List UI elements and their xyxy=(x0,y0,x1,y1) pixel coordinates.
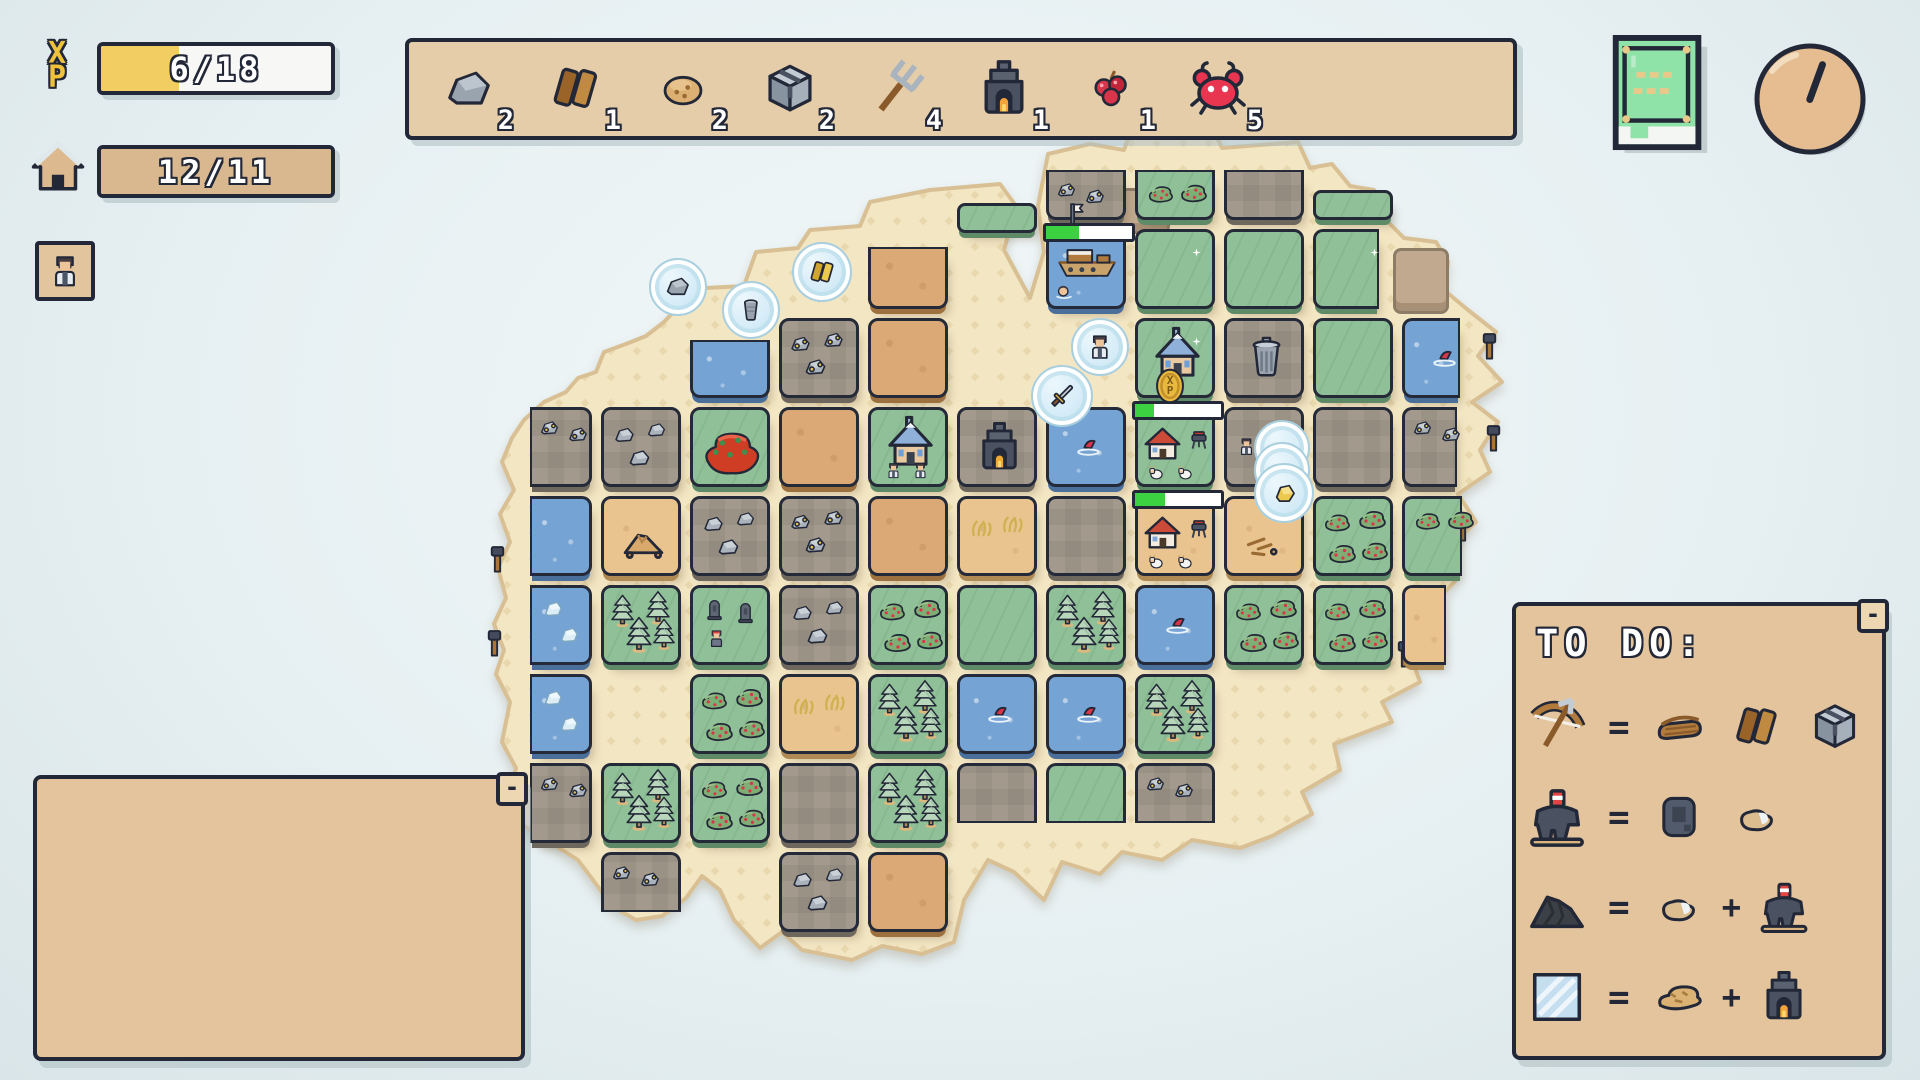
bubble-bucket[interactable] xyxy=(722,281,780,339)
leather-icon xyxy=(1652,700,1706,754)
equals-sign: = xyxy=(1608,887,1630,928)
fish-icon xyxy=(983,700,1016,733)
dock-post-icon xyxy=(486,629,503,658)
map-tile-grass[interactable] xyxy=(1135,229,1215,309)
map-tile-grass[interactable] xyxy=(1135,674,1215,754)
boat-icon xyxy=(1054,241,1120,282)
day-clock[interactable] xyxy=(1752,41,1868,157)
bubble-villager-avatar[interactable] xyxy=(1071,318,1129,376)
rock-icon xyxy=(803,621,832,650)
equals-sign: = xyxy=(1608,707,1630,748)
glass-icon xyxy=(1526,966,1588,1028)
sticks-icon xyxy=(1240,518,1285,563)
tile-progress-bar xyxy=(1043,223,1135,242)
map-tile-grass[interactable] xyxy=(1046,585,1126,665)
ore-rock-icon xyxy=(565,777,591,803)
trashcan-icon xyxy=(1244,331,1289,383)
item-count: 5 xyxy=(1247,105,1263,136)
bush-icon xyxy=(702,715,734,747)
map-tile-grass[interactable] xyxy=(1313,496,1393,576)
map-tile-stone[interactable] xyxy=(957,763,1037,823)
pitchfork-icon xyxy=(865,57,929,121)
map-tile-stone[interactable] xyxy=(957,407,1037,487)
rock-icon xyxy=(714,532,743,561)
fish-icon xyxy=(1072,700,1105,733)
map-tile-grass[interactable] xyxy=(1313,585,1393,665)
map-tile-stone[interactable] xyxy=(530,763,592,843)
item-count: 1 xyxy=(1140,105,1156,136)
tile-progress-bar xyxy=(1132,490,1224,509)
dry-grass-icon xyxy=(789,690,820,721)
xp-bar: 6/18 xyxy=(97,42,335,95)
ore-rock-icon xyxy=(820,326,847,353)
pine-icon xyxy=(918,796,944,829)
todo-title: TO DO: xyxy=(1536,622,1706,665)
grave-icon xyxy=(733,599,758,624)
map-tile-dirt[interactable] xyxy=(779,407,859,487)
planks-icon xyxy=(547,60,605,118)
map-tile-grass[interactable] xyxy=(690,674,770,754)
ore-rock-icon xyxy=(609,860,634,885)
dock-post-icon xyxy=(489,545,506,574)
drill-icon xyxy=(1757,880,1811,934)
map-tile-sand[interactable] xyxy=(601,496,681,576)
inventory-slot-planks[interactable]: 1 xyxy=(522,42,629,136)
item-count: 2 xyxy=(712,105,728,136)
map-tile-water[interactable] xyxy=(530,496,592,576)
bush-icon xyxy=(735,713,766,744)
stone-icon xyxy=(441,61,497,117)
map-tile-stone[interactable] xyxy=(779,585,859,665)
bush-icon xyxy=(732,681,764,713)
bush-icon xyxy=(1325,626,1357,658)
bush-icon xyxy=(1355,503,1387,535)
recipe-book-icon xyxy=(1612,35,1708,153)
rock-icon xyxy=(803,888,832,917)
pine-icon xyxy=(918,707,944,740)
villager-avatar-icon xyxy=(46,252,84,290)
dry-grass-icon xyxy=(998,508,1029,539)
goat-icon xyxy=(1145,551,1166,572)
map-tile-water[interactable] xyxy=(530,585,592,665)
map-tile-stone[interactable] xyxy=(1402,407,1457,487)
villager-red-icon xyxy=(706,628,727,649)
map-tile-sand[interactable] xyxy=(957,496,1037,576)
map-tile-stone[interactable] xyxy=(779,852,859,932)
pine-icon xyxy=(891,705,921,743)
bush-icon xyxy=(1269,624,1300,655)
inventory-slot-cookie[interactable]: 2 xyxy=(629,42,736,136)
pine-icon xyxy=(1185,707,1211,740)
bush-icon xyxy=(1177,177,1208,208)
goat-icon xyxy=(1145,462,1166,483)
map-tile-sand[interactable] xyxy=(1402,585,1446,665)
pebble-icon xyxy=(1730,790,1784,844)
map-tile-stone[interactable] xyxy=(1046,170,1126,220)
map-tile-grass[interactable] xyxy=(957,585,1037,665)
grill-icon xyxy=(1184,515,1213,544)
map-tile-sand[interactable] xyxy=(779,674,859,754)
map-tile-dirt[interactable] xyxy=(868,852,948,932)
pine-icon xyxy=(624,616,654,654)
dock-post-icon xyxy=(1485,424,1502,453)
bubble-gold-planks[interactable] xyxy=(792,242,852,302)
planks-icon xyxy=(1730,700,1784,754)
villager-avatar-button[interactable] xyxy=(35,241,95,301)
xp-icon-letter-p: P xyxy=(48,66,66,90)
map-tile-grass[interactable] xyxy=(1402,496,1462,576)
bush-icon xyxy=(698,685,728,715)
coal-icon xyxy=(1526,876,1588,938)
villager-icon xyxy=(884,461,903,480)
bush-icon xyxy=(1358,624,1389,655)
equals-sign: = xyxy=(1608,977,1630,1018)
ore-rock-icon xyxy=(1143,771,1168,796)
house-red-icon xyxy=(1141,511,1184,554)
map-tile-sand[interactable] xyxy=(1135,496,1215,576)
housing-bar: 12/11 xyxy=(97,145,335,198)
furnace-icon xyxy=(973,419,1026,476)
bush-icon xyxy=(698,774,728,804)
sparkle-icon xyxy=(1189,334,1204,349)
ore-rock-icon xyxy=(801,530,830,559)
xp-coin-label: X P xyxy=(1167,376,1174,396)
inventory-slot-furnace[interactable]: 1 xyxy=(950,42,1057,136)
fish-icon xyxy=(1161,611,1194,644)
sand-lump-icon xyxy=(1652,970,1706,1024)
pine-icon xyxy=(624,794,654,832)
fish-icon xyxy=(1428,344,1461,377)
iron-cube-icon xyxy=(761,60,819,118)
bush-icon xyxy=(910,592,942,624)
xp-coin-badge[interactable]: X P xyxy=(1152,365,1188,407)
rock-icon xyxy=(733,506,758,531)
ore-rock-icon xyxy=(820,504,847,531)
item-count: 2 xyxy=(498,105,514,136)
map-tile-dirt[interactable] xyxy=(868,318,948,398)
bush-icon xyxy=(1321,596,1351,626)
bush-icon xyxy=(1145,179,1174,208)
bush-icon xyxy=(1325,537,1357,569)
rock-icon xyxy=(625,443,654,472)
map-tile-water[interactable] xyxy=(530,674,592,754)
item-count: 4 xyxy=(926,105,942,136)
goat-icon xyxy=(1174,551,1195,572)
pine-icon xyxy=(1069,616,1099,654)
swimmer-icon xyxy=(1052,280,1076,304)
xp-icon: X P xyxy=(48,42,66,90)
pine-icon xyxy=(891,794,921,832)
bush-icon xyxy=(1266,592,1298,624)
recipe-book-button[interactable] xyxy=(1612,35,1708,153)
sand-pile-icon xyxy=(619,516,668,565)
bush-icon xyxy=(735,802,766,833)
bush-icon xyxy=(1232,596,1262,626)
pebble-icon xyxy=(1652,880,1706,934)
pine-icon xyxy=(1158,705,1188,743)
inventory-slot-stone[interactable]: 2 xyxy=(415,42,522,136)
map-tile-dirt[interactable] xyxy=(868,247,948,309)
map-tile-stone[interactable] xyxy=(601,407,681,487)
bush-icon xyxy=(880,626,912,658)
bush-icon xyxy=(1321,507,1351,537)
housing-bar-value: 12/11 xyxy=(101,149,331,194)
ore-rock-icon xyxy=(1082,183,1108,209)
ore-rock-icon xyxy=(1438,421,1464,447)
goat-icon xyxy=(1174,462,1195,483)
pine-icon xyxy=(1096,618,1122,651)
inventory-slot-berries[interactable]: 1 xyxy=(1057,42,1164,136)
ice-rock-icon xyxy=(540,596,566,622)
equals-sign: = xyxy=(1608,797,1630,838)
grill-icon xyxy=(1184,426,1213,455)
crab-icon xyxy=(1186,57,1250,121)
todo-panel: TO DO: - ===+=+ xyxy=(1512,602,1886,1060)
bubble-sword[interactable] xyxy=(1031,365,1093,427)
map-tile-stone[interactable] xyxy=(1224,170,1304,220)
map-tile-grass[interactable] xyxy=(1313,318,1393,398)
map-tile-grass[interactable] xyxy=(690,763,770,843)
furnace-icon xyxy=(974,59,1034,119)
rock-icon xyxy=(822,862,847,887)
recipe-drill: = xyxy=(1526,772,1874,862)
ore-rock-icon xyxy=(537,415,562,440)
bubble-stone[interactable] xyxy=(649,258,707,316)
rock-icon xyxy=(644,417,669,442)
map-tile-stone[interactable] xyxy=(1313,407,1393,487)
map-tile-water[interactable] xyxy=(1046,229,1126,309)
pine-icon xyxy=(651,618,677,651)
map-tile-stone[interactable] xyxy=(779,763,859,843)
grave-icon xyxy=(702,596,727,621)
map-tile-water[interactable] xyxy=(1046,674,1126,754)
map-tile-grass[interactable] xyxy=(957,203,1037,233)
drill-icon xyxy=(1526,786,1588,848)
map-tile-grass[interactable] xyxy=(1046,763,1126,823)
map-tile-grass[interactable] xyxy=(868,407,948,487)
bush-icon xyxy=(1412,506,1441,535)
map-tile-grass[interactable] xyxy=(1135,407,1215,487)
red-bush-icon xyxy=(700,423,763,476)
sparkle-icon xyxy=(1189,245,1204,260)
map-tile-water[interactable] xyxy=(957,674,1037,754)
recipe-bow: = xyxy=(1526,682,1874,772)
ore-rock-icon xyxy=(637,866,663,892)
berries-icon xyxy=(1088,66,1134,112)
iron-cube-icon xyxy=(1808,700,1862,754)
ice-rock-icon xyxy=(540,685,566,711)
log-panel-minimize-button[interactable]: - xyxy=(496,772,528,806)
map-tile-stone[interactable] xyxy=(779,496,859,576)
map-tile-grass[interactable] xyxy=(690,407,770,487)
inventory-slot-crab[interactable]: 5 xyxy=(1164,42,1271,136)
map-tile-stone[interactable] xyxy=(1224,318,1304,398)
map-tile-stone[interactable] xyxy=(601,852,681,912)
furnace-icon xyxy=(1757,970,1811,1024)
map-tile-grass[interactable] xyxy=(1135,170,1215,220)
map-tile-grass[interactable] xyxy=(601,763,681,843)
map-tile-grass[interactable] xyxy=(1224,229,1304,309)
recipe-coal: =+ xyxy=(1526,862,1874,952)
house-red-icon xyxy=(1141,422,1184,465)
todo-minimize-button[interactable]: - xyxy=(1857,599,1889,633)
bush-icon xyxy=(1236,626,1268,658)
ice-rock-icon xyxy=(556,711,582,737)
map-tile-grass[interactable] xyxy=(601,585,681,665)
fish-icon xyxy=(1072,433,1105,466)
ore-rock-icon xyxy=(537,771,562,796)
item-count: 1 xyxy=(605,105,621,136)
bush-icon xyxy=(1358,535,1389,566)
house-icon xyxy=(30,138,86,194)
item-count: 1 xyxy=(1033,105,1049,136)
map-tile-grass[interactable] xyxy=(1313,190,1393,220)
map-tile-stone[interactable] xyxy=(690,496,770,576)
sparkle-icon xyxy=(1367,245,1382,260)
dry-grass-icon xyxy=(967,512,998,543)
dry-grass-icon xyxy=(820,686,851,717)
map-tile-grass[interactable] xyxy=(868,585,948,665)
map-tile-stone[interactable] xyxy=(779,318,859,398)
ore-rock-icon xyxy=(1054,177,1079,202)
dirt-cliff-decor xyxy=(1393,248,1449,314)
dock-post-icon xyxy=(1481,332,1498,361)
log-panel: - xyxy=(33,775,525,1061)
inventory-slot-iron-cube[interactable]: 2 xyxy=(736,42,843,136)
map-tile-grass[interactable] xyxy=(1313,229,1379,309)
iron-slab-icon xyxy=(1652,790,1706,844)
xp-bar-value: 6/18 xyxy=(101,46,331,91)
bush-icon xyxy=(1355,592,1387,624)
map-tile-stone[interactable] xyxy=(1135,763,1215,823)
map-tile-water[interactable] xyxy=(1135,585,1215,665)
ore-rock-icon xyxy=(1171,777,1197,803)
ore-rock-icon xyxy=(565,421,591,447)
cookie-icon xyxy=(658,64,708,114)
bush-icon xyxy=(702,804,734,836)
rock-icon xyxy=(822,595,847,620)
inventory-bar: 21224115 xyxy=(405,38,1517,140)
game-screen: X P X P 6/18 12/11 21224115 xyxy=(0,0,1920,1080)
bow-icon xyxy=(1526,696,1588,758)
map-tile-stone[interactable] xyxy=(530,407,592,487)
recipe-glass: =+ xyxy=(1526,952,1874,1042)
bush-icon xyxy=(732,770,764,802)
pine-icon xyxy=(651,796,677,829)
map-tile-grass[interactable] xyxy=(868,674,948,754)
bush-icon xyxy=(876,596,906,626)
map-tile-dirt[interactable] xyxy=(868,496,948,576)
map-tile-grass[interactable] xyxy=(1224,585,1304,665)
map-tile-stone[interactable] xyxy=(1046,496,1126,576)
map-tile-water[interactable] xyxy=(1402,318,1460,398)
map-tile-grass[interactable] xyxy=(690,585,770,665)
ore-rock-icon xyxy=(1410,415,1435,440)
plus-sign: + xyxy=(1722,888,1741,926)
map-tile-water[interactable] xyxy=(690,340,770,398)
ore-rock-icon xyxy=(801,352,830,381)
map-tile-grass[interactable] xyxy=(868,763,948,843)
todo-recipes: ===+=+ xyxy=(1526,682,1874,1042)
item-count: 2 xyxy=(819,105,835,136)
inventory-slot-pitchfork[interactable]: 4 xyxy=(843,42,950,136)
bubble-nugget[interactable] xyxy=(1254,463,1314,523)
bush-icon xyxy=(1444,504,1475,535)
villager-icon xyxy=(911,461,930,480)
ice-rock-icon xyxy=(556,622,582,648)
plus-sign: + xyxy=(1722,978,1741,1016)
bush-icon xyxy=(913,624,944,655)
